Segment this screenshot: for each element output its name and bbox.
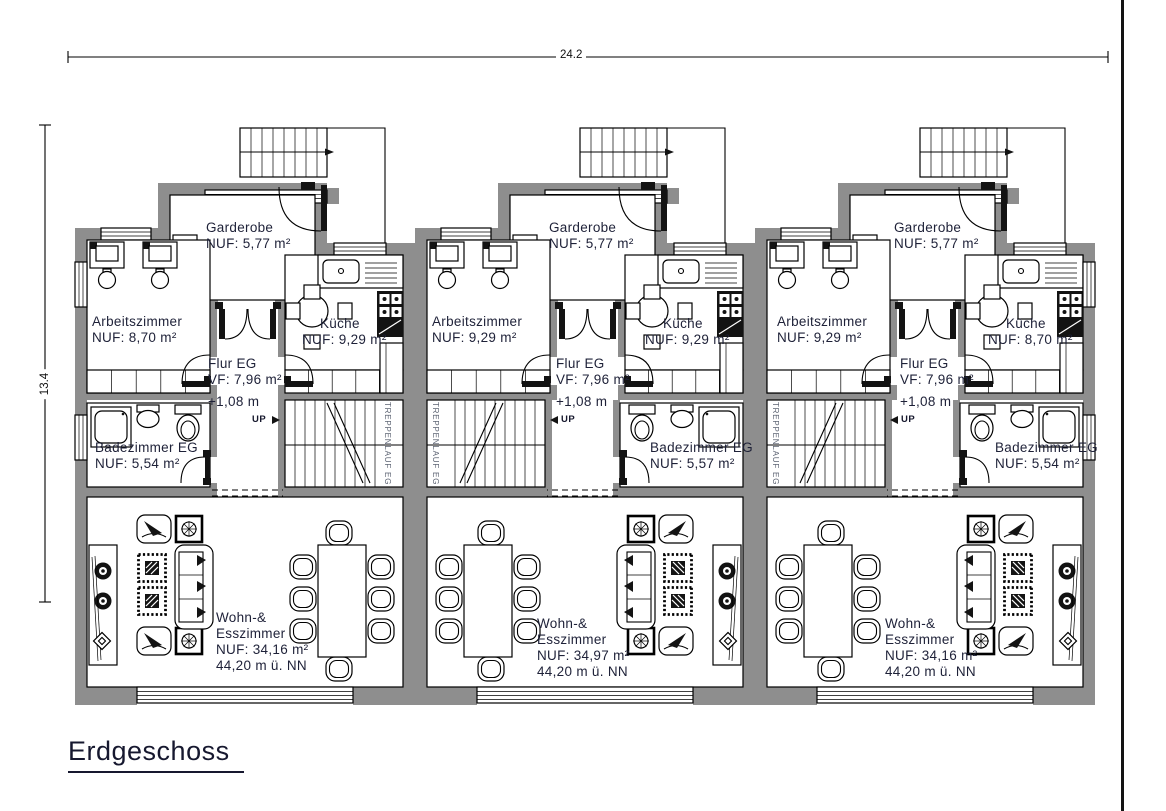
room-label-flur: Flur EG VF: 7,96 m² +1,08 m <box>208 356 282 410</box>
room-label-arbeitszimmer: Arbeitszimmer NUF: 8,70 m² <box>92 314 182 346</box>
room-label-badezimmer: Badezimmer EG NUF: 5,54 m² <box>995 440 1098 472</box>
room-label-wohnzimmer: Wohn-& Esszimmer NUF: 34,16 m² 44,20 m ü… <box>216 610 308 674</box>
room-label-wohnzimmer: Wohn-& Esszimmer NUF: 34,16 m² 44,20 m ü… <box>885 616 977 680</box>
room-label-flur: Flur EG VF: 7,96 m² +1,08 m <box>900 356 974 410</box>
dimension-left <box>39 125 51 602</box>
room-label-kueche: Küche NUF: 9,29 m² <box>645 316 730 348</box>
floor-plan-page: 24.2 13.4 Garderobe NUF: 5,77 m² Arbeits… <box>0 0 1166 811</box>
room-label-arbeitszimmer: Arbeitszimmer NUF: 9,29 m² <box>777 314 867 346</box>
side-window <box>75 415 87 460</box>
stairwell-label-unit-2: TREPPENLAUF EG <box>431 402 440 485</box>
room-label-badezimmer: Badezimmer EG NUF: 5,57 m² <box>650 440 753 472</box>
room-label-garderobe: Garderobe NUF: 5,77 m² <box>894 220 979 252</box>
up-label-unit-3: UP <box>901 414 915 425</box>
stairwell-label-unit-1: TREPPENLAUF EG <box>383 402 392 485</box>
room-label-kueche: Küche NUF: 8,70 m² <box>988 316 1073 348</box>
room-label-arbeitszimmer: Arbeitszimmer NUF: 9,29 m² <box>432 314 522 346</box>
up-label-unit-1: UP <box>252 414 266 425</box>
room-label-garderobe: Garderobe NUF: 5,77 m² <box>549 220 634 252</box>
side-window <box>75 262 87 307</box>
dimension-top <box>68 51 1108 63</box>
page-title: Erdgeschoss <box>68 736 244 773</box>
room-label-badezimmer: Badezimmer EG NUF: 5,54 m² <box>95 440 198 472</box>
room-label-flur: Flur EG VF: 7,96 m² +1,08 m <box>556 356 630 410</box>
room-label-garderobe: Garderobe NUF: 5,77 m² <box>206 220 291 252</box>
room-label-kueche: Küche NUF: 9,29 m² <box>302 316 387 348</box>
up-label-unit-2: UP <box>561 414 575 425</box>
dimension-height-label: 13.4 <box>39 369 51 399</box>
side-window <box>1083 262 1095 307</box>
room-label-wohnzimmer: Wohn-& Esszimmer NUF: 34,97 m² 44,20 m ü… <box>537 616 629 680</box>
dimension-width-label: 24.2 <box>556 49 586 61</box>
page-border-right <box>1121 0 1124 811</box>
stairwell-label-unit-3: TREPPENLAUF EG <box>771 402 780 485</box>
